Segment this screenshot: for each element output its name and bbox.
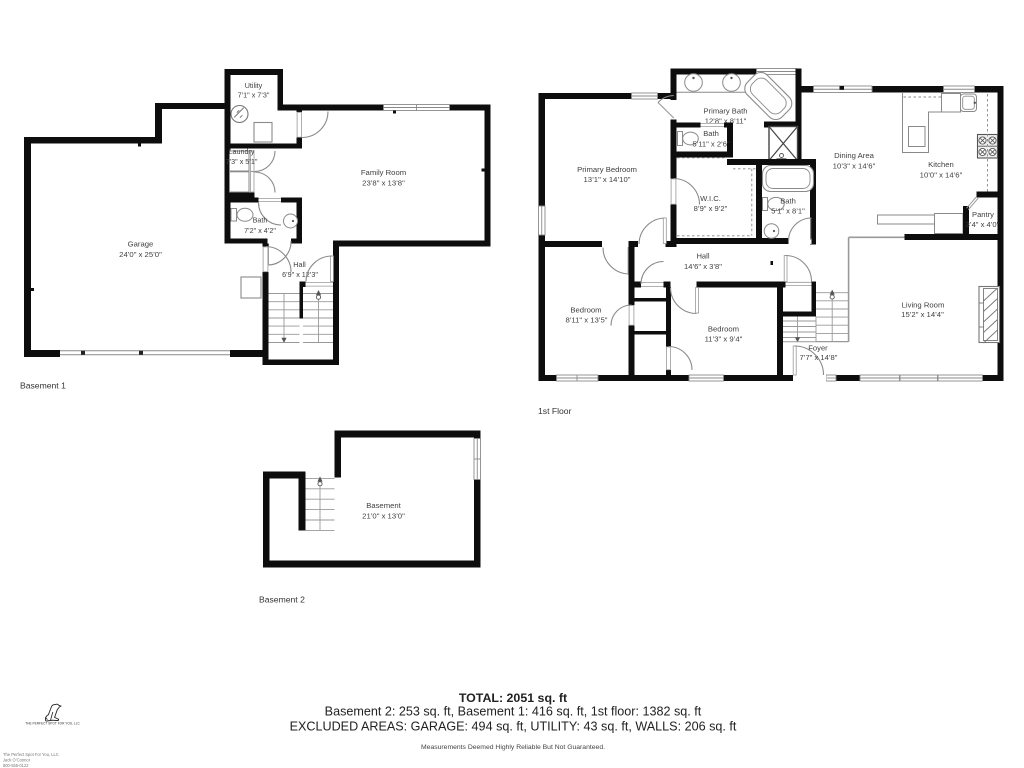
svg-text:Basement 1: Basement 1: [20, 380, 66, 390]
svg-text:6’9" x 12’3": 6’9" x 12’3": [282, 270, 318, 279]
svg-text:Pantry: Pantry: [972, 210, 994, 219]
svg-text:7’3" x 5’1": 7’3" x 5’1": [226, 157, 258, 166]
svg-text:TOTAL: 2051 sq. ft: TOTAL: 2051 sq. ft: [459, 691, 567, 705]
svg-text:Primary Bath: Primary Bath: [704, 106, 748, 115]
svg-text:7’7" x 14’8": 7’7" x 14’8": [800, 353, 838, 362]
svg-text:Basement 2: Basement 2: [259, 594, 305, 604]
svg-text:3’4" x 4’0": 3’4" x 4’0": [966, 220, 1000, 229]
svg-text:Basement 2: 253 sq. ft, Baseme: Basement 2: 253 sq. ft, Basement 1: 416 …: [325, 705, 702, 719]
svg-text:5’11" x 2’6": 5’11" x 2’6": [692, 139, 730, 148]
svg-text:Kitchen: Kitchen: [928, 160, 954, 169]
svg-text:EXCLUDED AREAS: GARAGE: 494 sq: EXCLUDED AREAS: GARAGE: 494 sq. ft, UTIL…: [290, 719, 737, 733]
svg-text:8’9" x 9’2": 8’9" x 9’2": [694, 204, 728, 213]
svg-text:THE PERFECT SPOT FOR YOU, LLC: THE PERFECT SPOT FOR YOU, LLC: [25, 721, 80, 725]
svg-text:Hall: Hall: [293, 260, 306, 269]
svg-text:10’0" x 14’6": 10’0" x 14’6": [920, 170, 963, 179]
svg-text:1st Floor: 1st Floor: [538, 406, 572, 416]
svg-text:13’1" x 14’10": 13’1" x 14’10": [584, 175, 631, 184]
svg-text:7’2" x 4’2": 7’2" x 4’2": [244, 226, 276, 235]
svg-text:5’1" x 8’1": 5’1" x 8’1": [771, 206, 805, 215]
svg-text:Utility: Utility: [245, 81, 263, 90]
svg-text:Hall: Hall: [696, 252, 709, 261]
svg-text:Bath: Bath: [253, 216, 268, 225]
svg-text:Basement: Basement: [366, 501, 401, 510]
svg-text:Living Room: Living Room: [902, 300, 945, 309]
svg-text:Jack O’Connor: Jack O’Connor: [3, 758, 31, 763]
svg-text:Primary Bedroom: Primary Bedroom: [577, 165, 637, 174]
svg-text:Dining Area: Dining Area: [834, 151, 874, 160]
svg-text:800-555-0122: 800-555-0122: [3, 763, 29, 768]
svg-text:7’1" x 7’3": 7’1" x 7’3": [238, 91, 270, 100]
svg-text:W.I.C.: W.I.C.: [700, 194, 721, 203]
svg-text:Garage: Garage: [128, 240, 154, 249]
svg-text:Bath: Bath: [780, 197, 796, 206]
svg-text:24’0" x 25’0": 24’0" x 25’0": [119, 250, 162, 259]
svg-text:Bedroom: Bedroom: [708, 325, 739, 334]
svg-text:14’6" x 3’8": 14’6" x 3’8": [684, 262, 722, 271]
svg-text:Foyer: Foyer: [808, 344, 828, 353]
svg-text:Laundry: Laundry: [229, 147, 255, 156]
svg-text:8’11" x 13’5": 8’11" x 13’5": [565, 316, 607, 325]
svg-text:23’8" x 13’8": 23’8" x 13’8": [362, 179, 405, 188]
svg-text:Measurements Deemed Highly Rel: Measurements Deemed Highly Reliable But …: [421, 744, 605, 751]
svg-text:10’3" x 14’6": 10’3" x 14’6": [833, 161, 876, 170]
svg-text:11’3" x 9’4": 11’3" x 9’4": [705, 335, 743, 344]
svg-text:Family Room: Family Room: [361, 168, 406, 177]
svg-text:Bath: Bath: [703, 129, 719, 138]
svg-text:21’0" x 13’0": 21’0" x 13’0": [362, 511, 405, 520]
svg-text:The Perfect Spot For You, LLC: The Perfect Spot For You, LLC: [3, 752, 59, 757]
svg-text:15’2" x 14’4": 15’2" x 14’4": [901, 310, 944, 319]
svg-text:Bedroom: Bedroom: [570, 306, 601, 315]
